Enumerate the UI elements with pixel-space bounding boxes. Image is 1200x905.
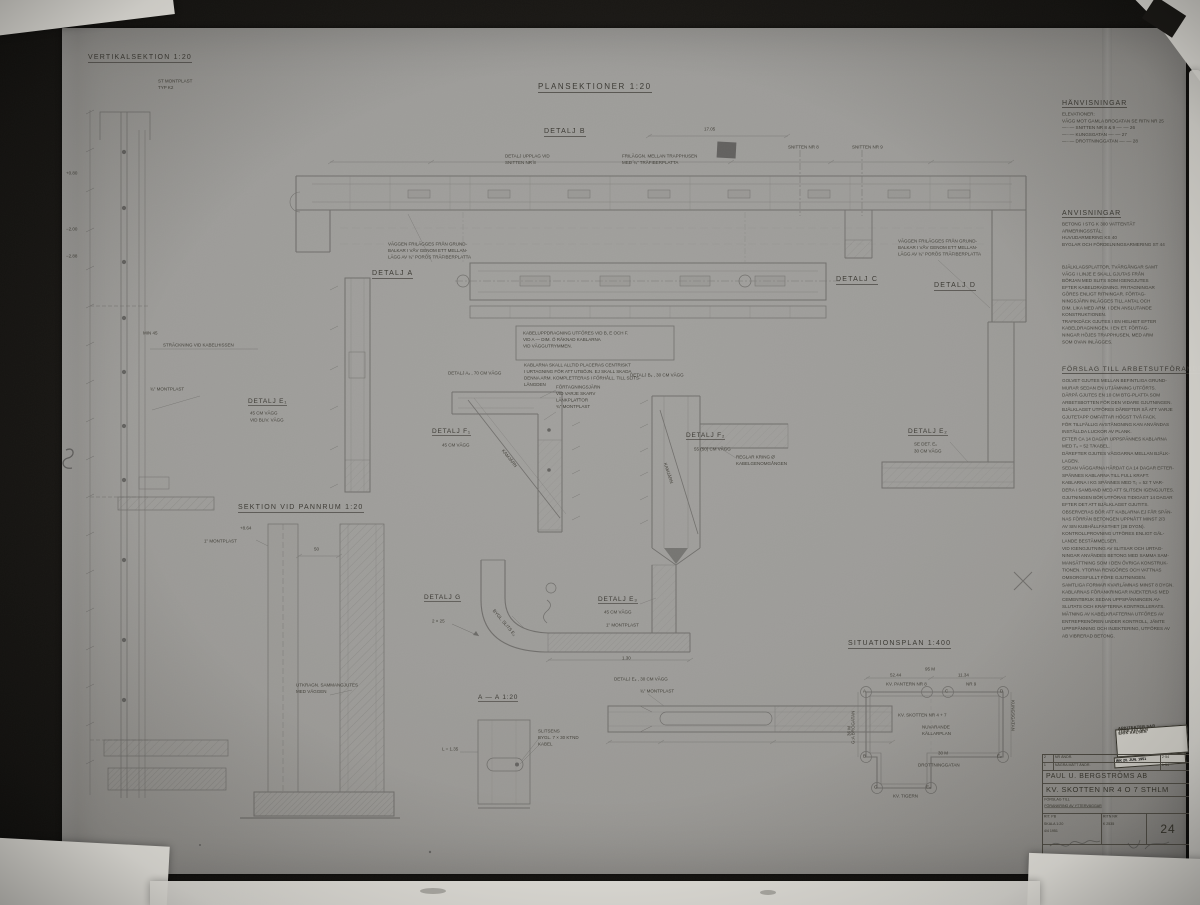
label-detail-e1: DETALJ E₁ — [248, 398, 287, 406]
label-detail-e3-sub: 45 CM VÄGG — [604, 609, 632, 616]
label-detail-e2-sub: SE DET. E₁ — [914, 441, 937, 448]
dim-50: 50 — [314, 546, 319, 553]
references-title: HÄNVISNINGAR — [1062, 100, 1127, 108]
sp-corner-c: C — [945, 688, 948, 695]
photo-corner-bottom-left — [0, 837, 170, 905]
label-detail-g: DETALJ G — [424, 594, 461, 602]
label-montplast-left: ¾" MONTPLAST — [150, 386, 184, 393]
level-288: −2.88 — [66, 253, 77, 260]
sheet-left-edge-light — [62, 28, 78, 874]
note-frilagg-left: VÄGGEN FRILÄGGES FRÅN GRUND-BALKAR I VÅV… — [388, 241, 471, 261]
dim-l135: L = 1.35 — [442, 746, 458, 753]
label-detail-f1-sub: 45 CM VÄGG — [442, 442, 470, 449]
work-proposal-title: FÖRSLAG TILL ARBETSUTFÖRANDE — [1062, 366, 1200, 374]
sheet-number-cell: 24 — [1147, 814, 1189, 844]
revision-row-1: 1 NÅGRA MÅTT ÄNDR. 1·54 — [1043, 763, 1189, 771]
label-snitt-8: SNITTEN NR 8 — [788, 144, 819, 151]
sp-corner-b: B — [863, 753, 866, 760]
label-detail-e2-sub2: 30 CM VÄGG — [914, 448, 942, 455]
sp-tigern: KV. TIGERN — [893, 793, 918, 800]
label-detail-c: DETALJ C — [836, 276, 878, 285]
revision-row-2: 2 NR ÄNDR. 2·54 — [1043, 755, 1189, 763]
sp-kungsgatan: KUNGSGATAN — [1010, 700, 1017, 731]
sp-dim11: 11.34 — [958, 672, 969, 679]
level-200: −2.00 — [66, 226, 77, 233]
sp-kallare: NUVARANDEKÄLLARPLAN — [922, 724, 951, 737]
heading-pannrum: SEKTION VID PANNRUM 1:20 — [238, 504, 364, 513]
notes-f1: FÖRTAGNINGSJÄRNVID VARJE SKARVLÄNKPLATTO… — [556, 384, 600, 410]
photo-of-drawing: VERTIKALSEKTION 1:20 ST MONTPLASTTYP K2 … — [0, 0, 1200, 905]
bottom-smudge-1 — [420, 888, 446, 894]
sheet-number: 24 — [1147, 814, 1189, 836]
dim-130: 1.30 — [622, 655, 631, 662]
bottom-smudge-2 — [760, 890, 776, 895]
note-utkragn: UTKRAGN. SAMMANGJUTESMED VÄGGEN — [296, 682, 358, 695]
label-min45: MIN 45 — [143, 330, 158, 337]
note-slits: SLITSENSBYGL. 7 × 30 KTNDKABEL — [538, 728, 579, 748]
sp-dim30: 30 M — [938, 750, 948, 757]
label-detail-e3: DETALJ E₃ — [598, 596, 638, 604]
photo-edge-bottom — [150, 881, 1040, 905]
label-snitt-9: SNITTEN NR 9 — [852, 144, 883, 151]
sp-corner-a: A — [863, 688, 866, 695]
level-864: +8.64 — [240, 525, 251, 532]
sp-dim36: 36 M — [846, 726, 853, 736]
dim-2x25: 2 × 25 — [432, 618, 445, 625]
note-boxed-kabel: KABELUPPDRAGNING UTFÖRES VID B, E OCH F.… — [523, 330, 628, 350]
company-name: PAUL U. BERGSTRÖMS AB — [1043, 771, 1148, 783]
sp-drottninggatan: DROTTNINGGATAN — [918, 762, 960, 769]
sp-corner-e2: E₂ — [997, 753, 1002, 760]
sp-dim95: 95 M — [925, 666, 935, 673]
note-frilagg-right: VÄGGEN FRILÄGGES FRÅN GRUND-BALKAR I VÅV… — [898, 238, 981, 258]
references-block: HÄNVISNINGAR ELEVATIONER:VÄGG MOT GAMLA … — [1062, 92, 1200, 179]
heading-section-aa: A — A 1:20 — [478, 694, 518, 702]
label-detail-e3b: DETALJ E₃ , 30 CM VÄGG — [614, 676, 668, 683]
note-frilaggn: FRILÄGGN. MELLAN TRAPPHUSENMED ¾" TRÄFIB… — [622, 153, 697, 166]
dim-1705: 17.05 — [704, 126, 715, 133]
heading-plan-sections: PLANSEKTIONER 1:20 — [538, 82, 652, 93]
label-montplast1: 1" MONTPLAST — [204, 538, 237, 545]
level-080: +0.80 — [66, 170, 77, 177]
label-detail-e3-sub2: 1" MONTPLAST — [606, 622, 639, 629]
label-detail-e1-sub2: VID BLIV. VÄGG — [250, 417, 284, 424]
label-detail-b2: DETALJ B₂ , 30 CM VÄGG — [630, 372, 684, 379]
sp-skotten: KV. SKOTTEN NR 4 + 7 — [898, 712, 946, 719]
note-stretch: STRÄCKNING VID KABELHISSEN — [163, 342, 234, 349]
drawing-subject: FÖRSLAG TILL FÖRANKRING AV YTTERVÄGGAR — [1043, 797, 1189, 814]
label-detail-e1-sub: 45 CM VÄGG — [250, 410, 278, 417]
label-detail-d: DETALJ D — [934, 282, 976, 291]
heading-situationsplan: SITUATIONSPLAN 1:400 — [848, 640, 951, 649]
sp-corner-d: D — [1000, 688, 1003, 695]
instructions-title: ANVISNINGAR — [1062, 210, 1121, 218]
label-detail-b: DETALJ B — [544, 128, 586, 137]
photo-edge-right — [1189, 70, 1200, 870]
photo-corner-bottom-right — [1027, 853, 1200, 905]
sp-pantern: KV. PANTERN NR 8 — [886, 681, 927, 688]
drawing-number-label-cell: RITN NR K 2535 — [1102, 814, 1147, 844]
title-block: 2 NR ÄNDR. 2·54 1 NÅGRA MÅTT ÄNDR. 1·54 … — [1042, 754, 1190, 860]
heading-vertical-section: VERTIKALSEKTION 1:20 — [88, 54, 192, 63]
label-detail-a2: DETALJ A₂ , 70 CM VÄGG — [448, 370, 501, 377]
sp-corner-g: G — [874, 784, 878, 791]
note-upplag: DETALJ UPPLAG VIDSNITTEN NR 8 — [505, 153, 550, 166]
label-detail-f2: DETALJ F₂ — [686, 432, 725, 440]
note-f2: REGLAR KRING ØKABELGENOMGÅNGEN — [736, 454, 787, 467]
sp-corner-e3: E₃ — [926, 784, 931, 791]
project-name: KV. SKOTTEN NR 4 O 7 STHLM — [1043, 784, 1169, 796]
sp-dim52: 52.44 — [890, 672, 901, 679]
sp-nr9: NR 9 — [966, 681, 976, 688]
label-detail-a: DETALJ A — [372, 270, 413, 279]
label-detail-f1: DETALJ F₁ — [432, 428, 471, 436]
label-detail-f2-sub: 55 (50) CM VÄGG — [694, 446, 731, 453]
note-topleft: ST MONTPLASTTYP K2 — [158, 78, 192, 91]
label-detail-e2: DETALJ E₂ — [908, 428, 948, 436]
drawn-by-fields: RIT. PB SKALA 1:20 4/4 1951 — [1043, 814, 1102, 844]
label-detail-e3b-sub: ¾" MONTPLAST — [640, 688, 674, 695]
